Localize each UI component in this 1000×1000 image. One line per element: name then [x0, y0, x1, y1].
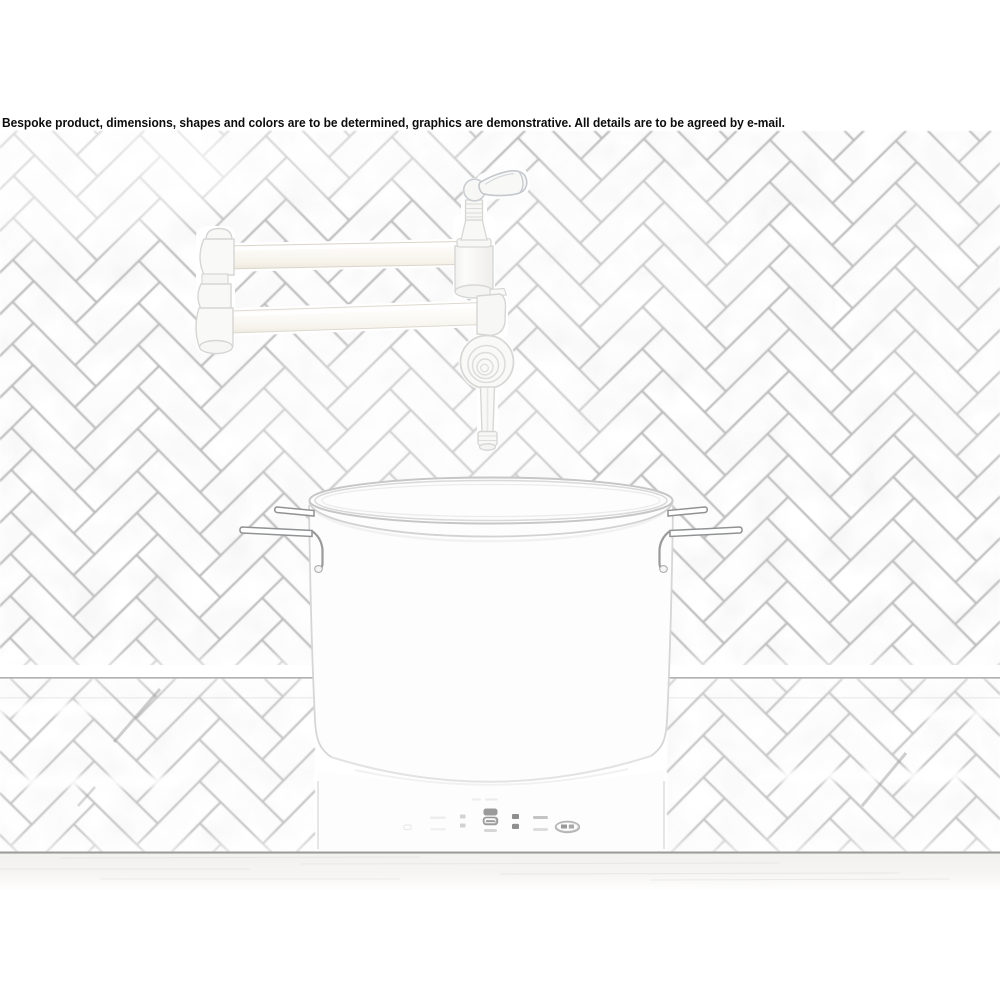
svg-text:Bespoke product, dimensions, s: Bespoke product, dimensions, shapes and …	[2, 115, 785, 130]
